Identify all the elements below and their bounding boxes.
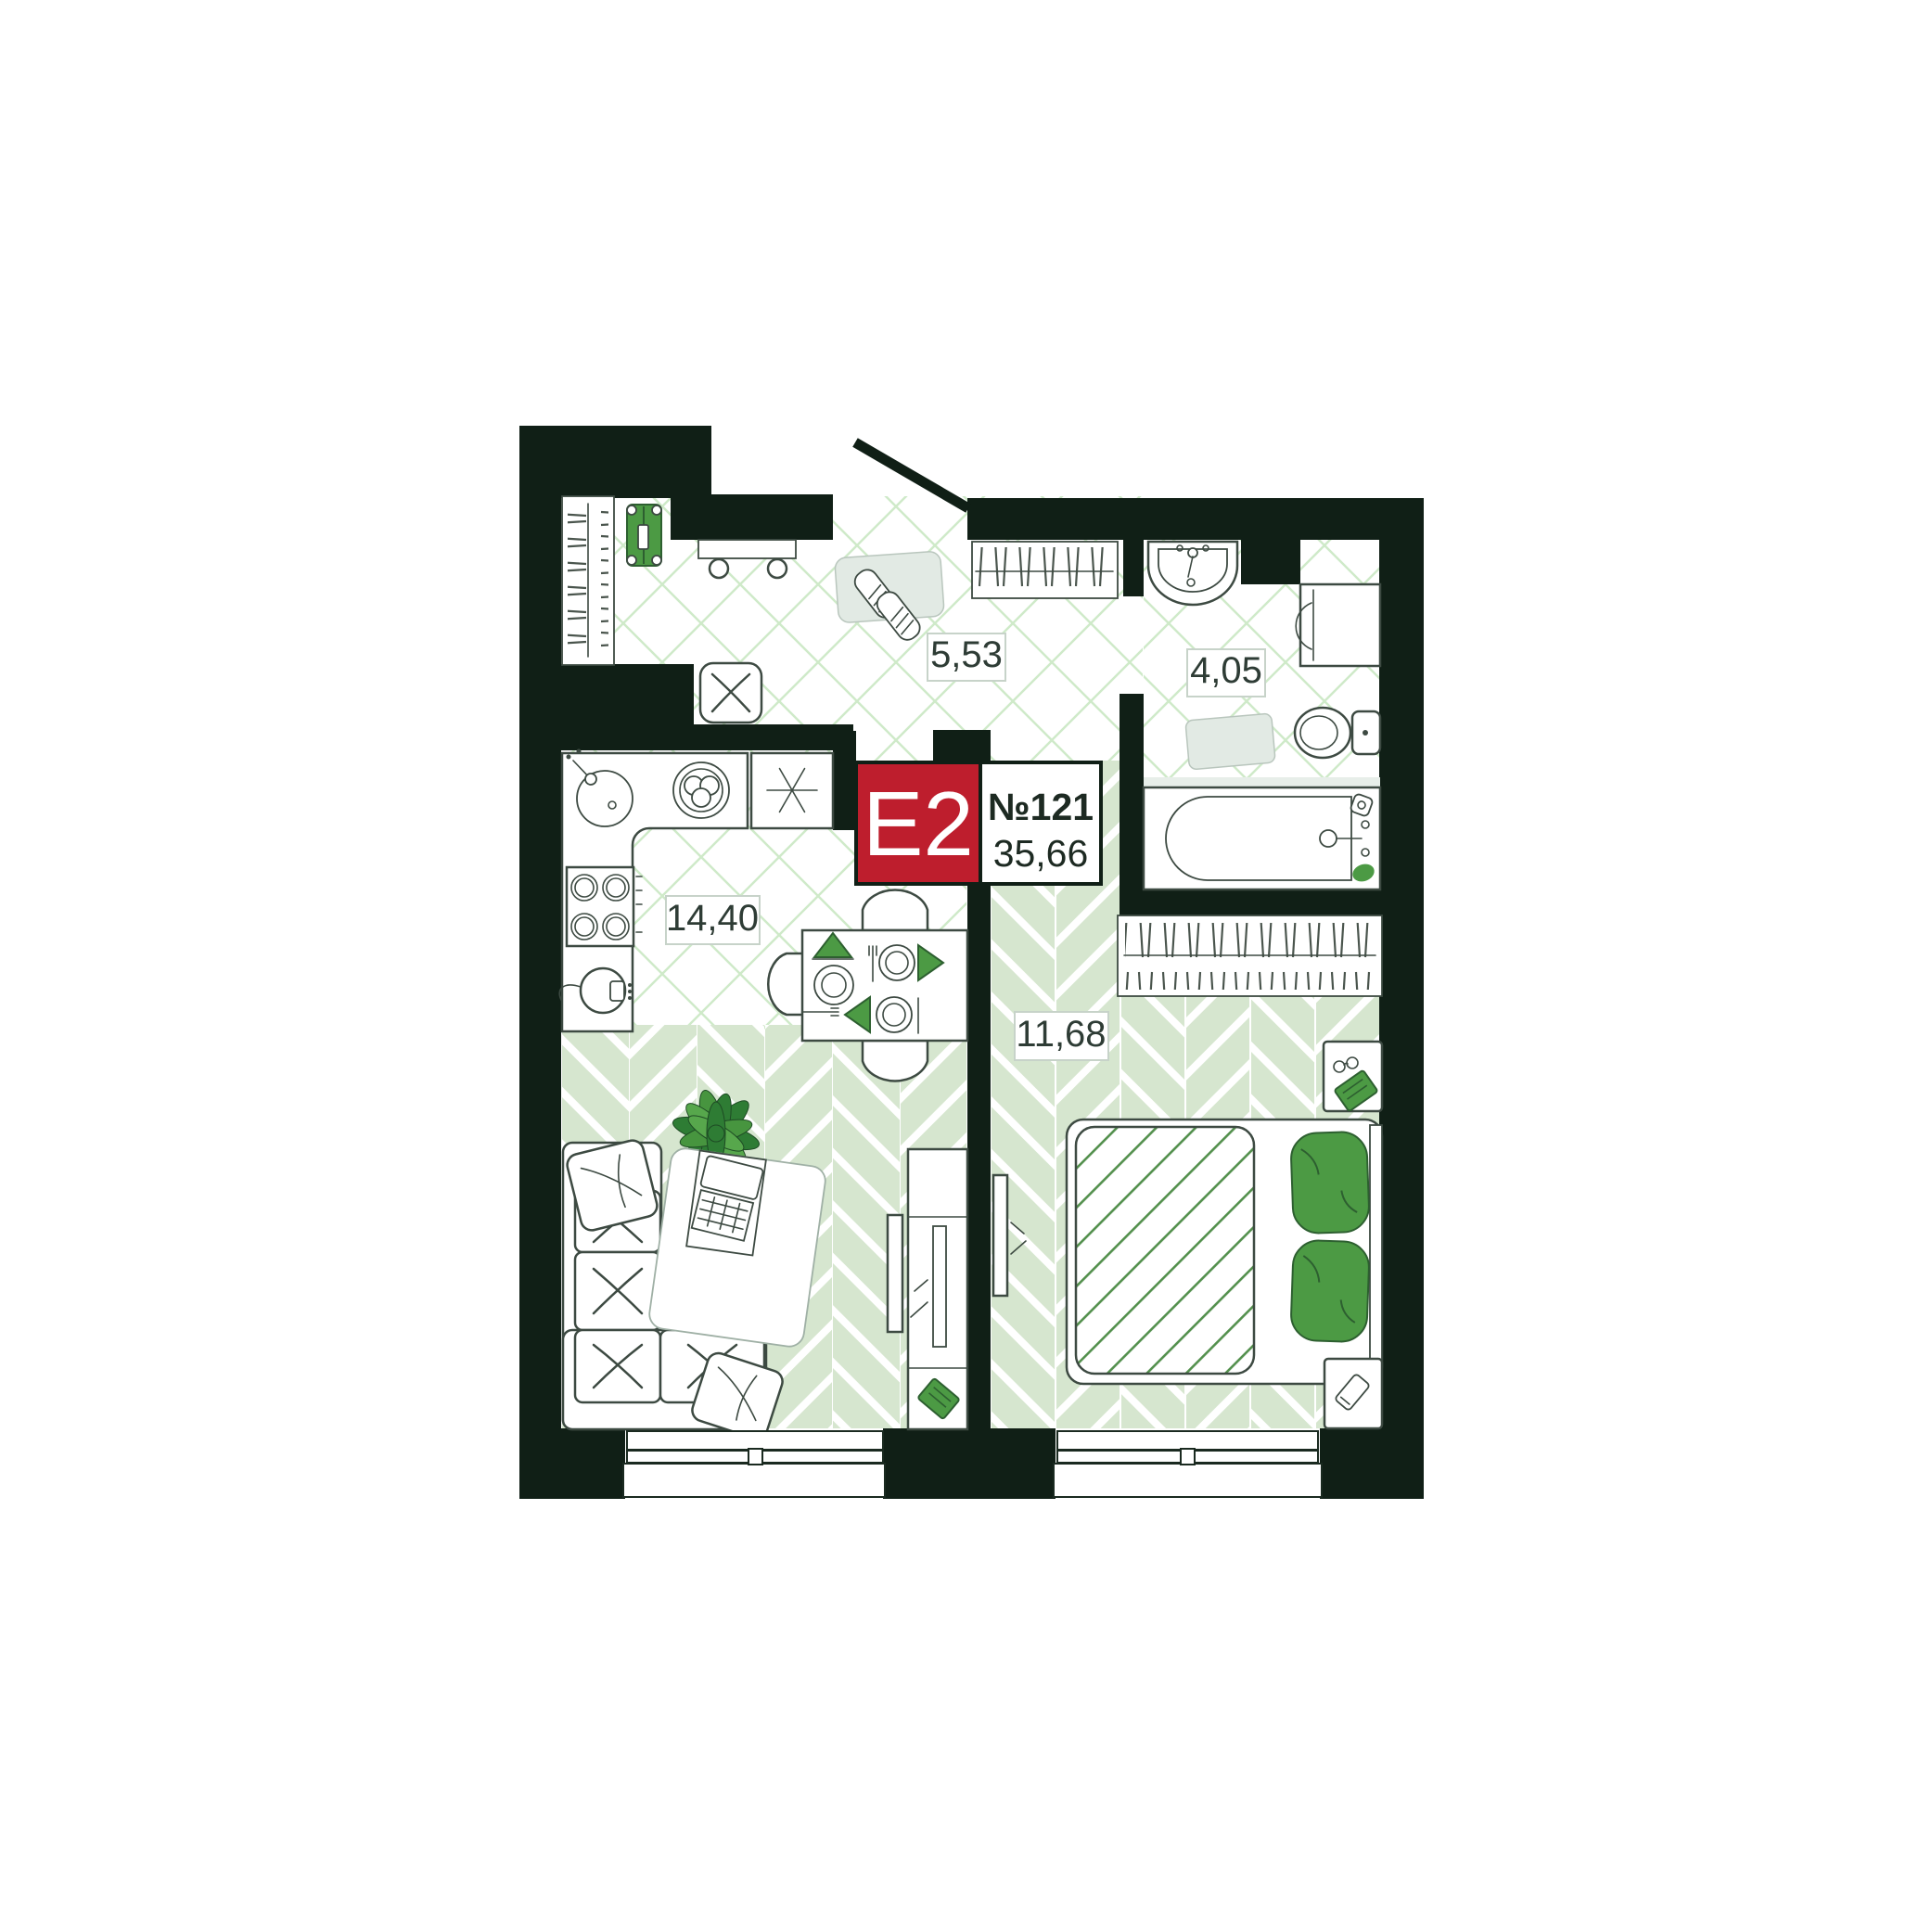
bath-mat bbox=[1185, 713, 1275, 770]
stool bbox=[700, 663, 761, 723]
svg-text:11,68: 11,68 bbox=[1016, 1014, 1106, 1055]
bathtub bbox=[1144, 787, 1380, 889]
floor-plan-page: 5,53 4,05 14,40 11,68 E2 №121 35,66 bbox=[0, 0, 1932, 1932]
hallway-area-label: 5,53 bbox=[928, 633, 1005, 681]
fridge bbox=[751, 753, 833, 828]
chair-bottom bbox=[863, 1041, 928, 1081]
toilet bbox=[1295, 708, 1380, 758]
hall-closet bbox=[562, 496, 614, 665]
svg-text:5,53: 5,53 bbox=[930, 634, 1003, 675]
tv-living bbox=[888, 1215, 902, 1332]
washing-machine bbox=[1296, 584, 1380, 666]
bedroom-window bbox=[1054, 1431, 1322, 1497]
bedroom-wardrobe bbox=[1118, 915, 1382, 996]
laptop-table bbox=[686, 1150, 766, 1255]
apartment-number: №121 bbox=[988, 786, 1094, 828]
chair-top bbox=[863, 890, 928, 930]
nightstand-top bbox=[1324, 1042, 1382, 1111]
svg-text:4,05: 4,05 bbox=[1190, 650, 1262, 691]
headboard bbox=[1370, 1125, 1382, 1377]
living-room-window bbox=[623, 1431, 885, 1497]
total-area: 35,66 bbox=[993, 832, 1089, 875]
stove bbox=[567, 867, 642, 946]
bathroom-area-label: 4,05 bbox=[1187, 649, 1265, 697]
fruit-bowl bbox=[673, 762, 729, 818]
suitcase bbox=[627, 505, 661, 566]
sofa-pillow bbox=[565, 1138, 659, 1233]
bed bbox=[1067, 1120, 1382, 1384]
bedroom-area-label: 11,68 bbox=[1015, 1012, 1108, 1060]
svg-text:14,40: 14,40 bbox=[666, 898, 759, 939]
nightstand-bottom bbox=[1324, 1359, 1382, 1428]
floor-plan: 5,53 4,05 14,40 11,68 E2 №121 35,66 bbox=[0, 0, 1932, 1932]
apartment-badge: E2 №121 35,66 bbox=[856, 762, 1101, 884]
kitchen-area-label: 14,40 bbox=[666, 896, 760, 944]
pillow bbox=[1290, 1132, 1370, 1235]
pillow bbox=[1290, 1240, 1370, 1343]
layout-code: E2 bbox=[863, 773, 974, 875]
coat-rack bbox=[972, 542, 1118, 598]
blanket bbox=[1076, 1127, 1254, 1374]
bath-shelf bbox=[1144, 777, 1380, 787]
chair-left bbox=[768, 953, 803, 1015]
